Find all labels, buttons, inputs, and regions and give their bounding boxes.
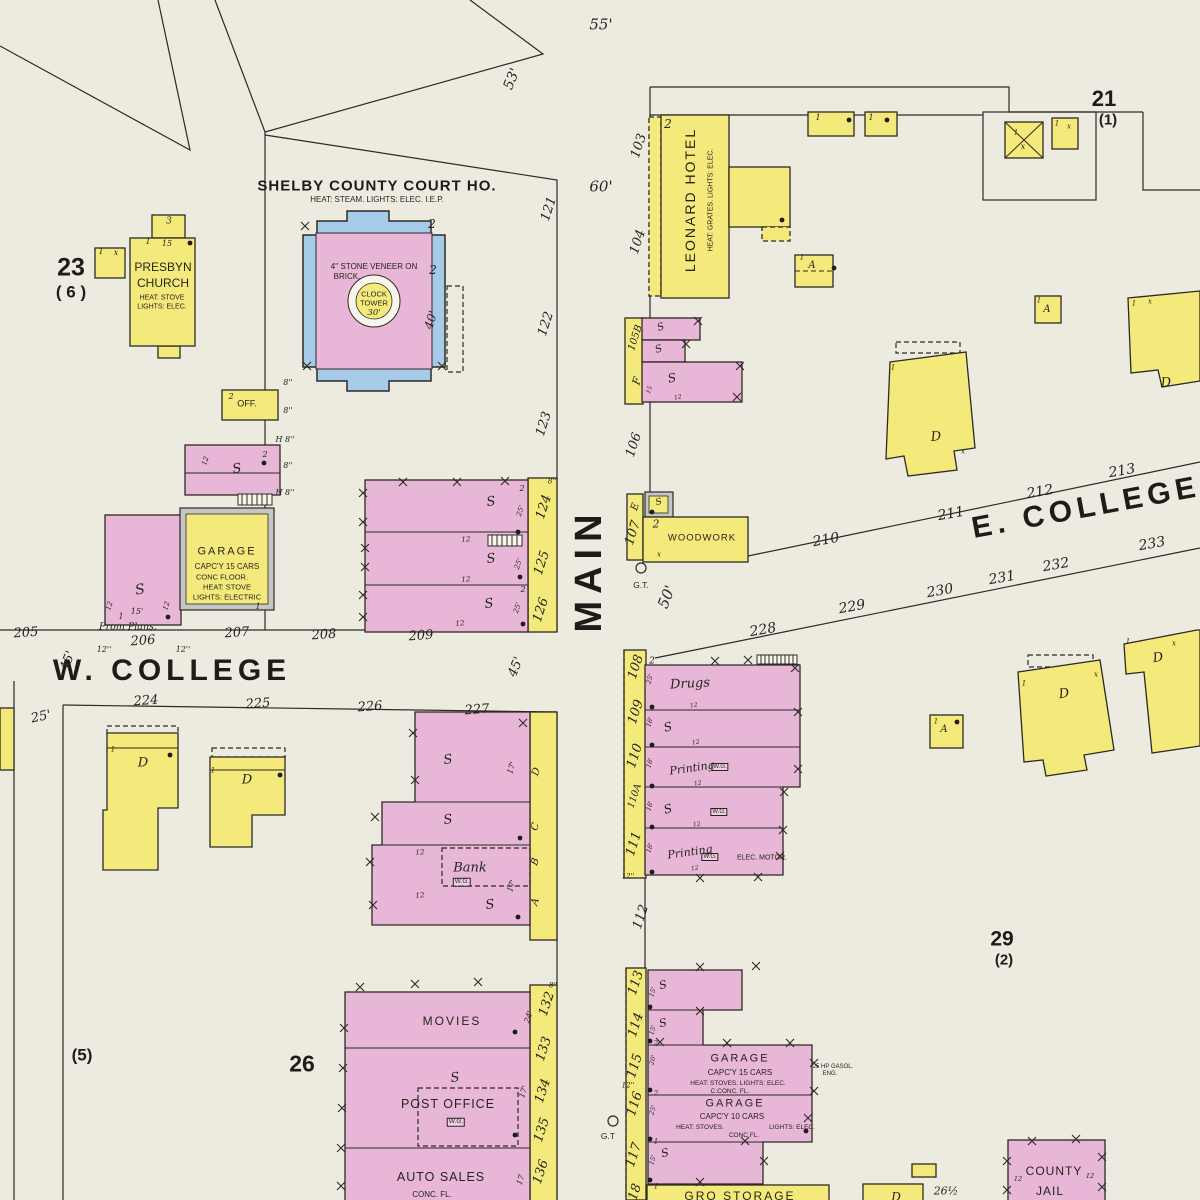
strip-107 [627, 494, 643, 560]
chimney-dot [650, 784, 655, 789]
block-108-buildings [645, 655, 800, 875]
chimney-dot [188, 241, 193, 246]
e-college-north-edge [748, 462, 1200, 556]
strip-a-d [530, 712, 557, 940]
opening-cross-mark [411, 980, 419, 988]
hotel-rear-tab [762, 227, 790, 241]
gasoline-tank-icon [608, 1116, 618, 1126]
chimney-dot [278, 773, 283, 778]
block-23-buildings [95, 215, 280, 625]
gasoline-tank-icon [636, 563, 646, 573]
building-garage-west [180, 508, 274, 610]
building-church-annex [95, 248, 125, 278]
street-line-diagonal-wedge [0, 0, 190, 150]
building-outbuilding-a2 [1035, 296, 1061, 323]
building-store-small [645, 492, 673, 517]
hotel-porch-strip [649, 117, 661, 296]
strip-124-126 [528, 478, 557, 632]
clock-tower [356, 283, 392, 319]
chimney-dot [516, 530, 521, 535]
building-stores-209 [365, 480, 528, 632]
building-dwelling-ecollege-2 [1128, 291, 1200, 387]
building-outbuilding-a [795, 255, 833, 287]
building-movies-block [345, 992, 530, 1200]
chimney-dot [650, 510, 655, 515]
building-shed-jail [912, 1164, 936, 1177]
chimney-dot [650, 705, 655, 710]
building-x-structure [1005, 122, 1043, 158]
building-dwelling-224 [103, 726, 178, 870]
opening-cross-mark [744, 656, 752, 664]
building-bank-block [372, 712, 530, 925]
building-edge-fragment [0, 708, 14, 770]
chimney-dot [650, 870, 655, 875]
chimney-dot [521, 622, 526, 627]
chimney-dot [168, 753, 173, 758]
chimney-dot [648, 1088, 653, 1093]
chimney-dot [513, 1030, 518, 1035]
opening-cross-mark [356, 983, 364, 991]
building-courthouse [303, 211, 463, 391]
opening-cross-mark [711, 657, 719, 665]
opening-cross-mark [371, 813, 379, 821]
building-shed-2 [865, 112, 897, 136]
building-office [222, 390, 278, 420]
building-store-105-3 [642, 362, 742, 402]
courthouse-porch [447, 286, 463, 372]
dwelling-porch-2 [896, 342, 960, 353]
building-garage-block [648, 970, 812, 1184]
strip-113-118 [626, 968, 646, 1200]
street-line-diagonal-north [265, 0, 543, 132]
chimney-dot [648, 1005, 653, 1010]
chimney-dot [955, 720, 960, 725]
chimney-dot [518, 575, 523, 580]
chimney-dot [885, 118, 890, 123]
chimney-dot [166, 615, 171, 620]
block-21-buildings [649, 112, 1078, 323]
building-shed-3 [1052, 118, 1078, 149]
chimney-dot [804, 1129, 809, 1134]
block-26-buildings [0, 708, 530, 1200]
building-dwelling-225 [210, 748, 285, 847]
chimney-dot [648, 1178, 653, 1183]
building-presbyn-church [130, 215, 195, 358]
building-store-pair [185, 445, 280, 495]
building-store-105-2 [642, 340, 685, 362]
chimney-dot [518, 836, 523, 841]
church-apse [158, 346, 180, 358]
block-105-stores [642, 318, 742, 402]
chimney-dot [516, 915, 521, 920]
sanborn-map-page: W. COLLEGEE. COLLEGEMAIN23( 6 )21(1)26(5… [0, 0, 1200, 1200]
garage-west-floor [186, 514, 268, 604]
stairs-symbol [488, 535, 522, 546]
opening-cross-mark [337, 1182, 345, 1190]
opening-cross-mark [337, 1144, 345, 1152]
map-canvas [0, 0, 1200, 1200]
chimney-dot [832, 266, 837, 271]
chimney-dot [780, 218, 785, 223]
block-113-buildings [647, 970, 829, 1200]
building-store-w [105, 515, 181, 625]
strip-132-136 [530, 985, 557, 1200]
strip-105 [625, 318, 643, 404]
building-drugs-printing [645, 665, 800, 875]
e-college-south-edge [655, 548, 1200, 658]
building-woodwork [643, 517, 748, 562]
address-strips [528, 318, 646, 1200]
building-shed-1 [808, 112, 854, 136]
building-county-jail [1008, 1140, 1105, 1200]
chimney-dot [513, 1133, 518, 1138]
opening-cross-mark [301, 222, 309, 230]
chimney-dot [650, 825, 655, 830]
building-dwelling-jail [863, 1184, 923, 1200]
chimney-dot [262, 461, 267, 466]
building-dwelling-29-1 [1018, 660, 1114, 776]
building-dwelling-29-2 [1124, 630, 1200, 753]
chimney-dot [648, 1137, 653, 1142]
building-store-105-1 [642, 318, 700, 340]
chimney-dot [648, 1039, 653, 1044]
church-main [130, 238, 195, 346]
chimney-dot [650, 743, 655, 748]
block-courthouse-stores [365, 480, 528, 632]
woodwork-corner [643, 492, 748, 562]
building-leonard-hotel [661, 115, 729, 298]
jail-area [863, 1140, 1105, 1200]
building-dwelling-ecollege-1 [886, 352, 975, 476]
opening-cross-mark [752, 962, 760, 970]
skylight-symbol [757, 655, 797, 664]
chimney-dot [847, 118, 852, 123]
church-tower [152, 215, 185, 238]
strip-108-111 [624, 650, 646, 878]
block-29-buildings [886, 291, 1200, 776]
stairs-symbol [238, 494, 272, 505]
building-gro-storage [647, 1185, 829, 1200]
opening-cross-mark [474, 978, 482, 986]
w-college-south-edge [63, 705, 557, 712]
